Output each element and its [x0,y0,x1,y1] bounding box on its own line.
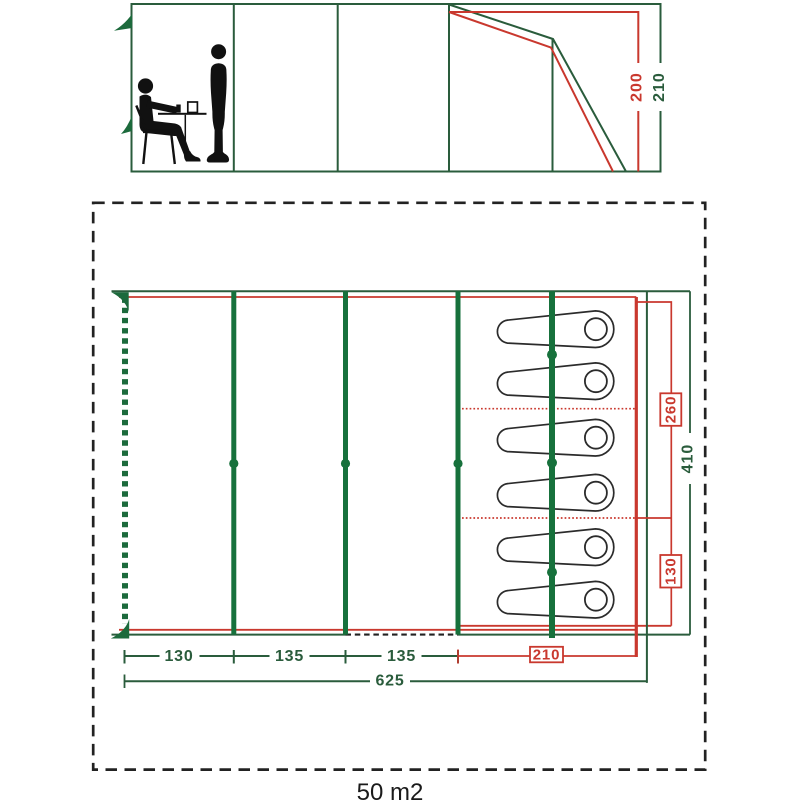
svg-text:200: 200 [628,72,645,102]
svg-text:135: 135 [387,648,416,665]
svg-text:210: 210 [533,646,560,663]
svg-text:50 m2: 50 m2 [357,779,424,800]
svg-text:135: 135 [275,648,304,665]
svg-text:130: 130 [164,648,193,665]
svg-text:410: 410 [679,444,696,474]
svg-text:130: 130 [662,557,679,584]
svg-text:210: 210 [651,72,668,102]
svg-text:260: 260 [662,396,679,423]
svg-text:625: 625 [375,673,404,690]
